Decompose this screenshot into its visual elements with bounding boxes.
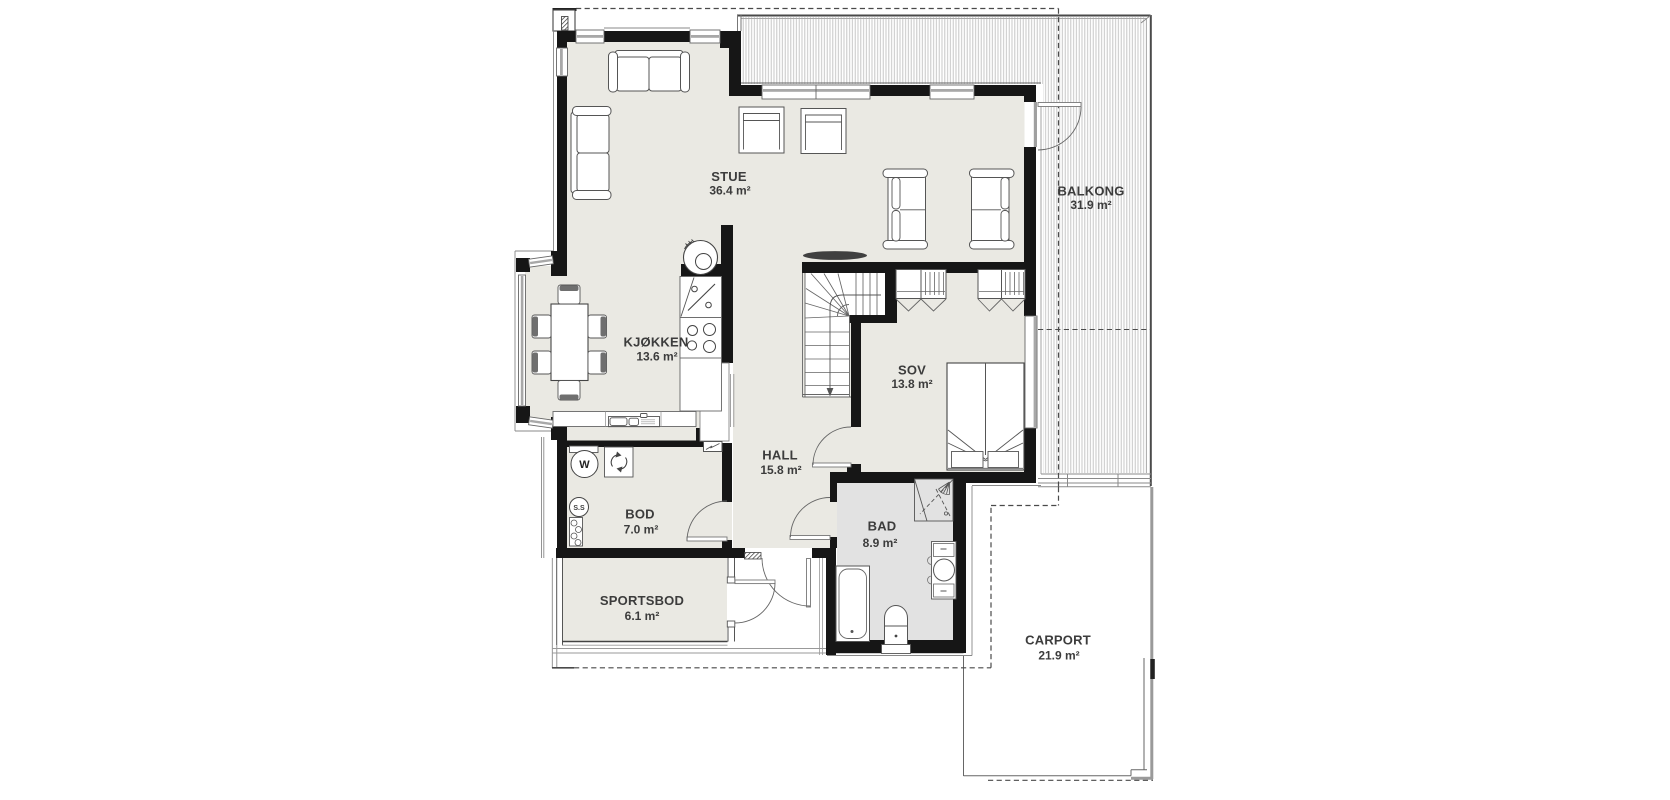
svg-text:STUE: STUE	[711, 169, 747, 184]
svg-text:36.4 m²: 36.4 m²	[709, 184, 750, 198]
svg-text:13.8 m²: 13.8 m²	[891, 377, 932, 391]
svg-text:SPORTSBOD: SPORTSBOD	[600, 593, 684, 608]
svg-text:21.9 m²: 21.9 m²	[1038, 649, 1079, 663]
svg-text:31.9 m²: 31.9 m²	[1070, 198, 1111, 212]
svg-text:7.0 m²: 7.0 m²	[624, 523, 659, 537]
svg-text:SOV: SOV	[898, 363, 926, 378]
svg-text:HALL: HALL	[762, 448, 797, 463]
svg-text:BOD: BOD	[625, 507, 655, 522]
svg-text:CARPORT: CARPORT	[1025, 633, 1091, 648]
svg-text:S.S: S.S	[573, 505, 585, 512]
svg-text:15.8 m²: 15.8 m²	[760, 463, 801, 477]
svg-text:KJØKKEN: KJØKKEN	[624, 335, 689, 350]
svg-text:8.9 m²: 8.9 m²	[863, 536, 898, 550]
svg-text:13.6 m²: 13.6 m²	[636, 350, 677, 364]
svg-text:BAD: BAD	[868, 519, 897, 534]
svg-text:6.1 m²: 6.1 m²	[625, 609, 660, 623]
svg-text:BALKONG: BALKONG	[1057, 184, 1124, 199]
svg-text:W: W	[579, 459, 590, 471]
